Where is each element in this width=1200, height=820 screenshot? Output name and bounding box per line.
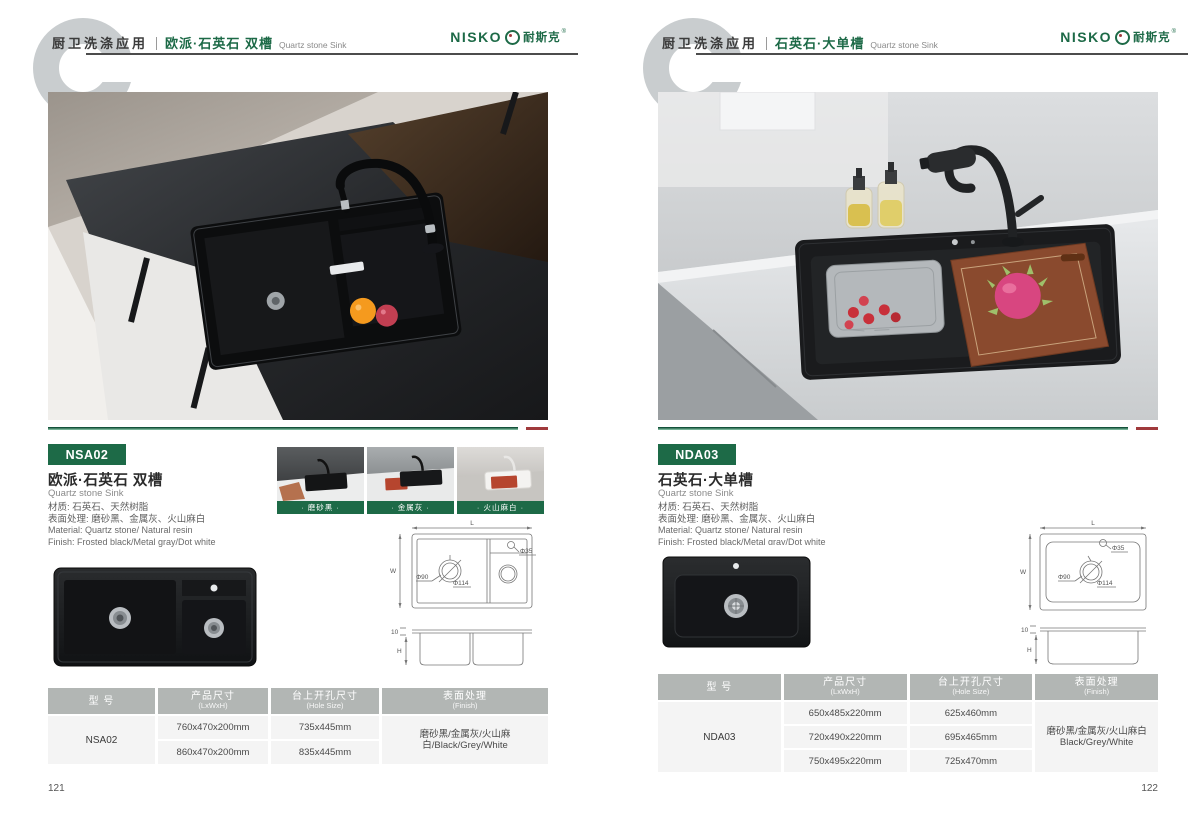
- variant-frosted-black: · 磨砂黑 ·: [277, 447, 364, 514]
- header-line2: (Finish): [452, 701, 477, 710]
- header-product-name: 石英石·大单槽: [775, 33, 864, 52]
- header-category: 厨卫洗涤应用: [52, 33, 148, 52]
- finish-line1: 磨砂黑/金属灰/火山麻白/Black/Grey/White: [382, 729, 548, 751]
- page-header: 厨卫洗涤应用 欧派·石英石 双槽 Quartz stone Sink: [52, 33, 347, 52]
- header-line1: 产品尺寸: [191, 692, 235, 701]
- header-line1: 台上开孔尺寸: [292, 692, 358, 701]
- header-product-name: 欧派·石英石 双槽: [165, 33, 273, 52]
- size-cell: 720x490x220mm: [784, 726, 907, 748]
- product-subtitle: Quartz stone Sink: [48, 488, 124, 499]
- header-line2: (Hole Size): [306, 701, 343, 710]
- registered-mark: ®: [1172, 29, 1176, 35]
- finish-cell: 磨砂黑/金属灰/火山麻白/Black/Grey/White: [382, 716, 548, 764]
- hole-cell: 695x465mm: [910, 726, 1033, 748]
- brand-logo: NISKO 耐斯克 ®: [450, 29, 566, 45]
- section-divider-green: [48, 427, 518, 430]
- variant-thumbnails: · 磨砂黑 · · 金属灰 ·: [277, 447, 544, 514]
- header-divider: [766, 37, 767, 50]
- hole-cell: 725x470mm: [910, 750, 1033, 772]
- hole-top-label: Φ35: [1112, 545, 1125, 552]
- page-number: 122: [1141, 783, 1158, 794]
- spec-finish-cn: 表面处理: 磨砂黑、金属灰、火山麻白: [658, 514, 826, 526]
- col-header-model: 型 号: [658, 674, 781, 700]
- brand-logo-emblem-icon: [1115, 30, 1130, 45]
- brand-logo-cn: 耐斯克: [1133, 29, 1171, 45]
- size-cell: 750x495x220mm: [784, 750, 907, 772]
- page-header: 厨卫洗涤应用 石英石·大单槽 Quartz stone Sink: [662, 33, 938, 52]
- dim-width-label: W: [1020, 569, 1027, 576]
- size-cell: 860x470x200mm: [158, 741, 268, 764]
- header-line1: 产品尺寸: [823, 678, 867, 687]
- drain-d2-label: Φ114: [453, 580, 469, 587]
- product-specs: 材质: 石英石、天然树脂 表面处理: 磨砂黑、金属灰、火山麻白 Material…: [658, 502, 826, 548]
- spec-material-en: Material: Quartz stone/ Natural resin: [658, 525, 826, 537]
- flange-label: 10: [1021, 627, 1029, 634]
- variant-dot-white: · 火山麻白 ·: [457, 447, 544, 514]
- drain-d2-label: Φ114: [1097, 580, 1113, 587]
- finish-line2: Black/Grey/White: [1060, 737, 1133, 748]
- size-cell: 760x470x200mm: [158, 716, 268, 739]
- header-line1: 表面处理: [443, 692, 487, 701]
- col-header-hole: 台上开孔尺寸 (Hole Size): [271, 688, 379, 714]
- variant-label: · 火山麻白 ·: [457, 501, 544, 514]
- product-title: 石英石·大单槽: [658, 469, 753, 490]
- header-rule: [696, 53, 1188, 55]
- brand-logo-en: NISKO: [450, 29, 502, 45]
- header-line2: (LxWxH): [198, 701, 227, 710]
- hole-top-label: Φ35: [520, 548, 533, 555]
- registered-mark: ®: [562, 29, 566, 35]
- hole-cell: 835x445mm: [271, 741, 379, 764]
- technical-drawing-single-bowl: L W Φ35 Φ90 Φ114 10 H: [1018, 516, 1160, 668]
- header-category: 厨卫洗涤应用: [662, 33, 758, 52]
- brand-logo: NISKO 耐斯克 ®: [1060, 29, 1176, 45]
- catalog-page-left: 厨卫洗涤应用 欧派·石英石 双槽 Quartz stone Sink NISKO…: [28, 0, 580, 820]
- brand-logo-emblem-icon: [505, 30, 520, 45]
- header-line2: (Hole Size): [952, 687, 989, 696]
- col-header-finish: 表面处理 (Finish): [382, 688, 548, 714]
- section-divider-red: [1136, 427, 1158, 430]
- dim-height-label: H: [397, 648, 402, 655]
- product-topview-double-sink: [48, 558, 262, 676]
- product-topview-single-sink: [658, 545, 815, 658]
- spec-material-cn: 材质: 石英石、天然树脂: [48, 502, 216, 514]
- hole-cell: 625x460mm: [910, 702, 1033, 724]
- model-cell: NSA02: [48, 716, 155, 764]
- product-photo-single-sink: [658, 92, 1158, 420]
- header-line1: 台上开孔尺寸: [938, 678, 1004, 687]
- header-line2: (Finish): [1084, 687, 1109, 696]
- header-line1: 型 号: [706, 683, 732, 692]
- product-title: 欧派·石英石 双槽: [48, 469, 163, 490]
- brand-logo-cn: 耐斯克: [523, 29, 561, 45]
- finish-cell: 磨砂黑/金属灰/火山麻白 Black/Grey/White: [1035, 702, 1158, 772]
- header-product-en: Quartz stone Sink: [870, 40, 938, 50]
- model-cell: NDA03: [658, 702, 781, 772]
- variant-label: · 磨砂黑 ·: [277, 501, 364, 514]
- col-header-finish: 表面处理 (Finish): [1035, 674, 1158, 700]
- header-line1: 表面处理: [1075, 678, 1119, 687]
- col-header-hole: 台上开孔尺寸 (Hole Size): [910, 674, 1033, 700]
- model-badge: NSA02: [48, 444, 126, 465]
- col-header-size: 产品尺寸 (LxWxH): [784, 674, 907, 700]
- finish-line1: 磨砂黑/金属灰/火山麻白: [1046, 726, 1146, 737]
- header-divider: [156, 37, 157, 50]
- header-rule: [86, 53, 578, 55]
- product-subtitle: Quartz stone Sink: [658, 488, 734, 499]
- header-product-en: Quartz stone Sink: [279, 40, 347, 50]
- size-cell: 650x485x220mm: [784, 702, 907, 724]
- section-divider-green: [658, 427, 1128, 430]
- header-line1: 型 号: [89, 697, 115, 706]
- catalog-page-right: 厨卫洗涤应用 石英石·大单槽 Quartz stone Sink NISKO 耐…: [638, 0, 1190, 820]
- variant-label: · 金属灰 ·: [367, 501, 454, 514]
- technical-drawing-double-bowl: L W Φ35 Φ90 Φ114 10 H: [386, 516, 548, 668]
- catalog-spread: 厨卫洗涤应用 欧派·石英石 双槽 Quartz stone Sink NISKO…: [0, 0, 1200, 820]
- dim-width-label: W: [390, 568, 397, 575]
- spec-material-cn: 材质: 石英石、天然树脂: [658, 502, 826, 514]
- page-number: 121: [48, 783, 65, 794]
- product-photo-double-sink: [48, 92, 548, 420]
- dim-length-label: L: [470, 520, 474, 527]
- product-specs: 材质: 石英石、天然树脂 表面处理: 磨砂黑、金属灰、火山麻白 Material…: [48, 502, 216, 548]
- header-line2: (LxWxH): [831, 687, 860, 696]
- flange-label: 10: [391, 629, 399, 636]
- drain-d1-label: Φ90: [416, 574, 429, 581]
- model-badge: NDA03: [658, 444, 736, 465]
- col-header-model: 型 号: [48, 688, 155, 714]
- spec-material-en: Material: Quartz stone/ Natural resin: [48, 525, 216, 537]
- spec-finish-en: Finish: Frosted black/Metal gray/Dot whi…: [48, 537, 216, 549]
- spec-table: 型 号 产品尺寸 (LxWxH) 台上开孔尺寸 (Hole Size) 表面处理…: [658, 674, 1158, 772]
- spec-table: 型 号 产品尺寸 (LxWxH) 台上开孔尺寸 (Hole Size) 表面处理…: [48, 688, 548, 764]
- dim-length-label: L: [1091, 520, 1095, 527]
- hole-cell: 735x445mm: [271, 716, 379, 739]
- spec-finish-cn: 表面处理: 磨砂黑、金属灰、火山麻白: [48, 514, 216, 526]
- drain-d1-label: Φ90: [1058, 574, 1071, 581]
- col-header-size: 产品尺寸 (LxWxH): [158, 688, 268, 714]
- section-divider-red: [526, 427, 548, 430]
- variant-metal-gray: · 金属灰 ·: [367, 447, 454, 514]
- dim-height-label: H: [1027, 647, 1032, 654]
- brand-logo-en: NISKO: [1060, 29, 1112, 45]
